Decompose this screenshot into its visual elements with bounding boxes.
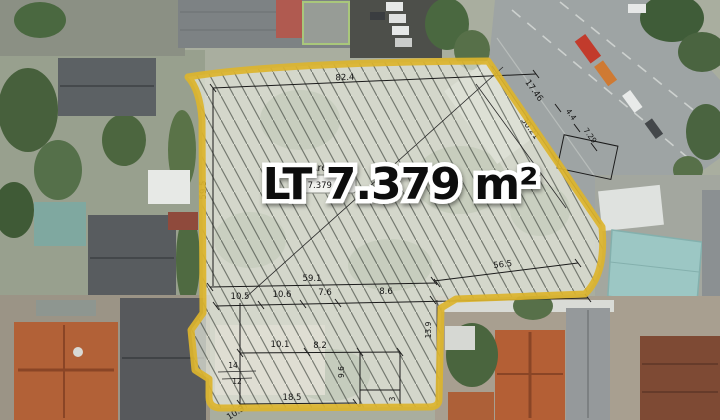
- orange-roof: [448, 392, 494, 420]
- dim-label-ext-v2: 13.9: [424, 321, 433, 338]
- white-roof-building: [148, 170, 190, 204]
- pool-court: [34, 202, 86, 246]
- tree: [102, 114, 146, 166]
- bottom-right-neighborhood: [435, 292, 720, 420]
- aerial-photo-canvas: 82.4 59.5 17.46 4.4 7.29 30.21 59.1 10.5…: [0, 0, 720, 420]
- dim-label-row1: 10.5: [231, 292, 250, 302]
- tree: [34, 140, 82, 200]
- parked-car: [395, 38, 412, 47]
- tree: [14, 2, 66, 38]
- dim-label-ext-v1: 9.6: [337, 366, 346, 378]
- parked-car-dark: [370, 12, 385, 20]
- white-van: [628, 4, 646, 13]
- dim-label-ext-bottom: 18.5: [283, 393, 302, 403]
- parked-car: [392, 26, 409, 35]
- rust-roof: [640, 336, 720, 420]
- tree: [0, 68, 58, 152]
- red-shop-roof: [276, 0, 302, 38]
- land-area-main-label: LT 7.379 m²: [263, 159, 538, 210]
- white-building-roof: [598, 185, 664, 231]
- dim-label-ext1: 10.1: [271, 340, 290, 350]
- aerial-land-plot-image: 82.4 59.5 17.46 4.4 7.29 30.21 59.1 10.5…: [0, 0, 720, 420]
- dim-label-ext4: 12: [232, 377, 242, 386]
- red-roof: [168, 212, 198, 230]
- parked-car: [389, 14, 406, 23]
- white-shed: [445, 326, 475, 350]
- shed-roof: [36, 300, 96, 316]
- satellite-dish: [73, 347, 83, 357]
- left-neighborhood: [0, 50, 210, 420]
- dim-label-row2: 10.6: [273, 290, 292, 300]
- dim-label-row4: 8.6: [379, 287, 393, 297]
- dim-label-ext-v3: 3: [388, 396, 397, 401]
- green-edged-roof: [303, 2, 349, 44]
- dim-label-row3: 7.6: [318, 288, 332, 298]
- dim-label-ext2: 8.2: [313, 341, 327, 351]
- dim-label-top: 82.4: [335, 73, 354, 84]
- dim-label-mid: 59.1: [303, 274, 322, 284]
- parked-car: [386, 2, 403, 11]
- dim-label-ext3: 14: [228, 361, 238, 370]
